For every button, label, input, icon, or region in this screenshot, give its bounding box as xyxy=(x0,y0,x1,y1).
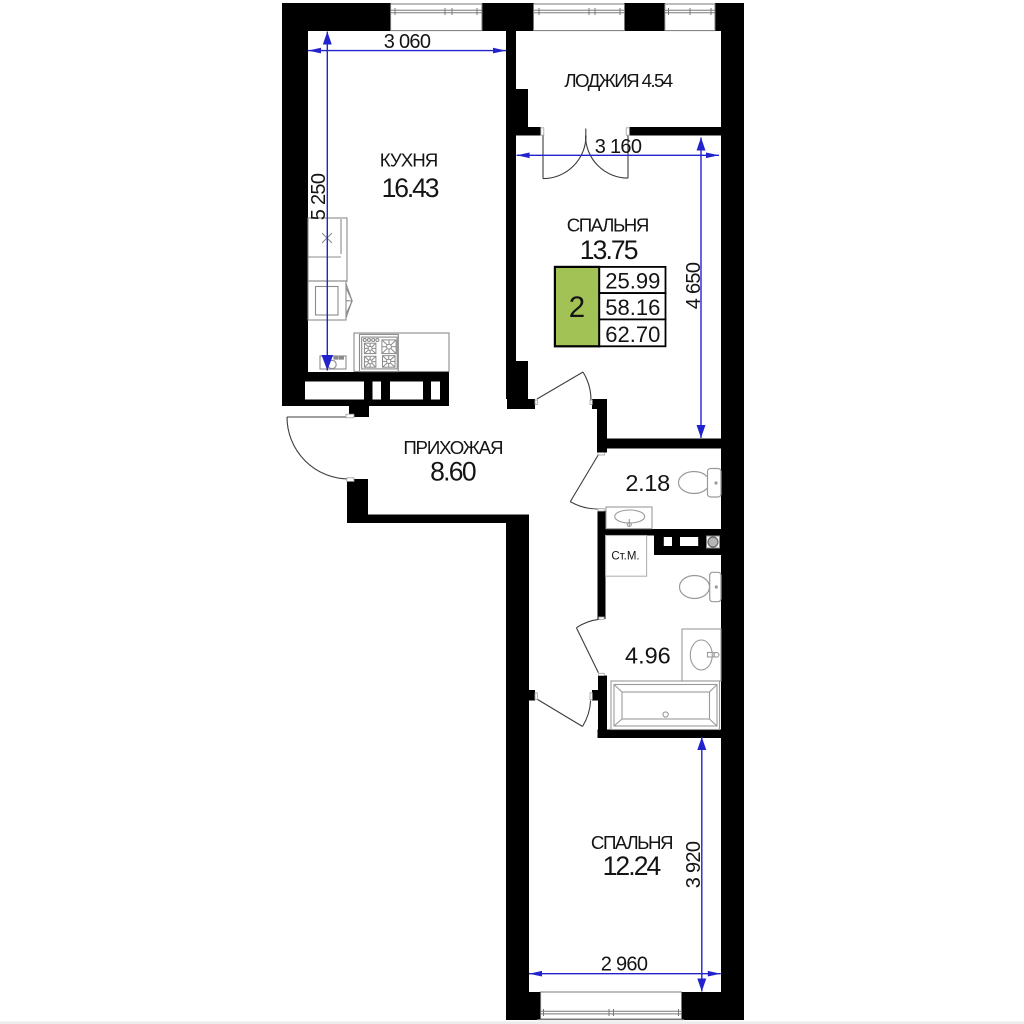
svg-text:13.75: 13.75 xyxy=(580,235,638,265)
svg-text:СПАЛЬНЯ: СПАЛЬНЯ xyxy=(591,832,672,853)
svg-text:62.70: 62.70 xyxy=(605,322,660,347)
svg-text:4 650: 4 650 xyxy=(683,262,705,309)
svg-text:58.16: 58.16 xyxy=(605,295,660,320)
svg-text:2 960: 2 960 xyxy=(601,954,648,976)
svg-text:5 250: 5 250 xyxy=(308,173,330,220)
svg-text:12.24: 12.24 xyxy=(603,851,661,881)
svg-text:4.96: 4.96 xyxy=(625,643,671,669)
svg-text:3 920: 3 920 xyxy=(683,841,705,888)
svg-text:ПРИХОЖАЯ: ПРИХОЖАЯ xyxy=(403,437,502,458)
svg-text:3 160: 3 160 xyxy=(595,136,642,158)
svg-text:КУХНЯ: КУХНЯ xyxy=(380,150,437,171)
svg-text:2: 2 xyxy=(569,291,585,324)
svg-text:СПАЛЬНЯ: СПАЛЬНЯ xyxy=(567,215,648,236)
svg-text:25.99: 25.99 xyxy=(605,268,660,293)
svg-text:2.18: 2.18 xyxy=(625,470,670,496)
svg-text:Ст.М.: Ст.М. xyxy=(611,551,639,563)
svg-text:ЛОДЖИЯ 4.54: ЛОДЖИЯ 4.54 xyxy=(564,70,672,91)
svg-text:8.60: 8.60 xyxy=(430,457,476,487)
svg-text:3 060: 3 060 xyxy=(384,31,431,53)
svg-text:16.43: 16.43 xyxy=(382,173,439,203)
